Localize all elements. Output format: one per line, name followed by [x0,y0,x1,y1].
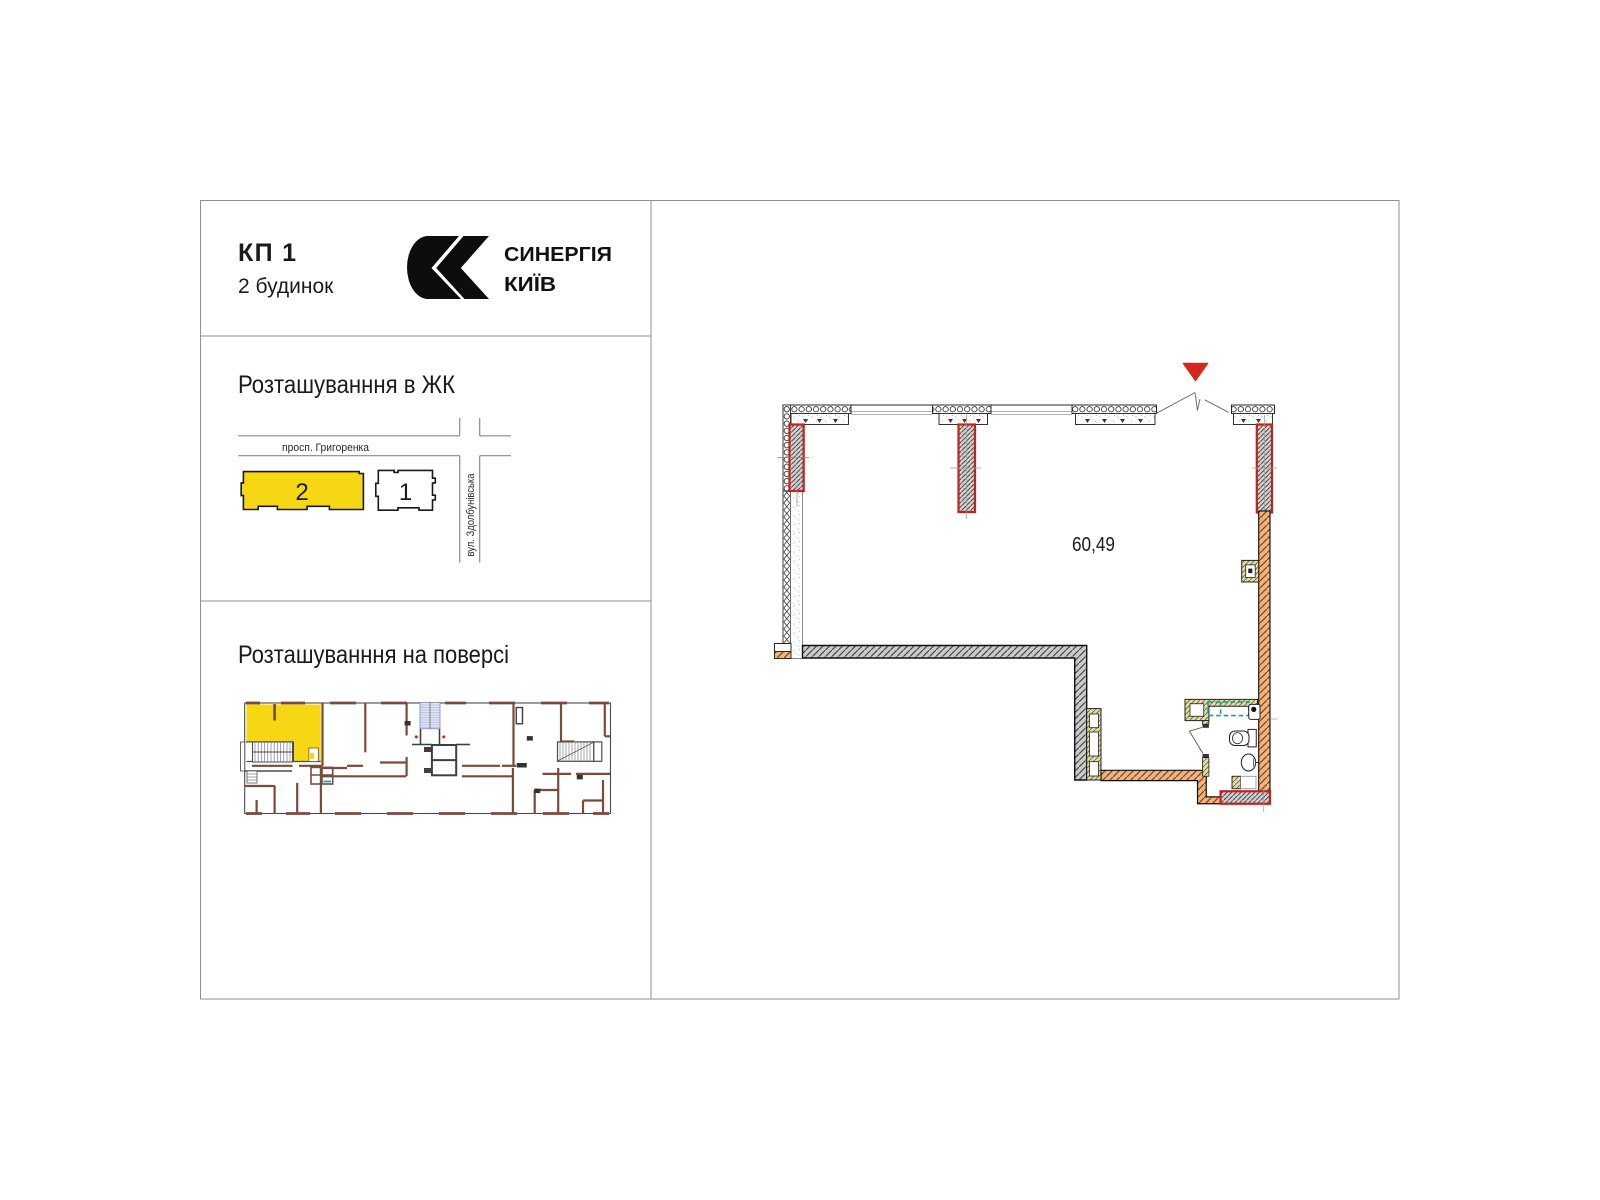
svg-text:Розташуванння на поверсі: Розташуванння на поверсі [238,641,509,669]
svg-text:60,49: 60,49 [1072,534,1115,556]
svg-text:просп. Григоренка: просп. Григоренка [282,442,370,454]
svg-text:2 будинок: 2 будинок [238,275,334,298]
svg-text:Розташуванння в ЖК: Розташуванння в ЖК [238,371,455,399]
svg-text:КИЇВ: КИЇВ [504,273,556,296]
svg-text:вул. Здолбунівська: вул. Здолбунівська [465,473,477,557]
svg-text:СИНЕРГІЯ: СИНЕРГІЯ [504,243,612,266]
svg-text:КП 1: КП 1 [238,239,296,267]
svg-text:2: 2 [295,479,308,506]
svg-text:1: 1 [399,479,412,506]
